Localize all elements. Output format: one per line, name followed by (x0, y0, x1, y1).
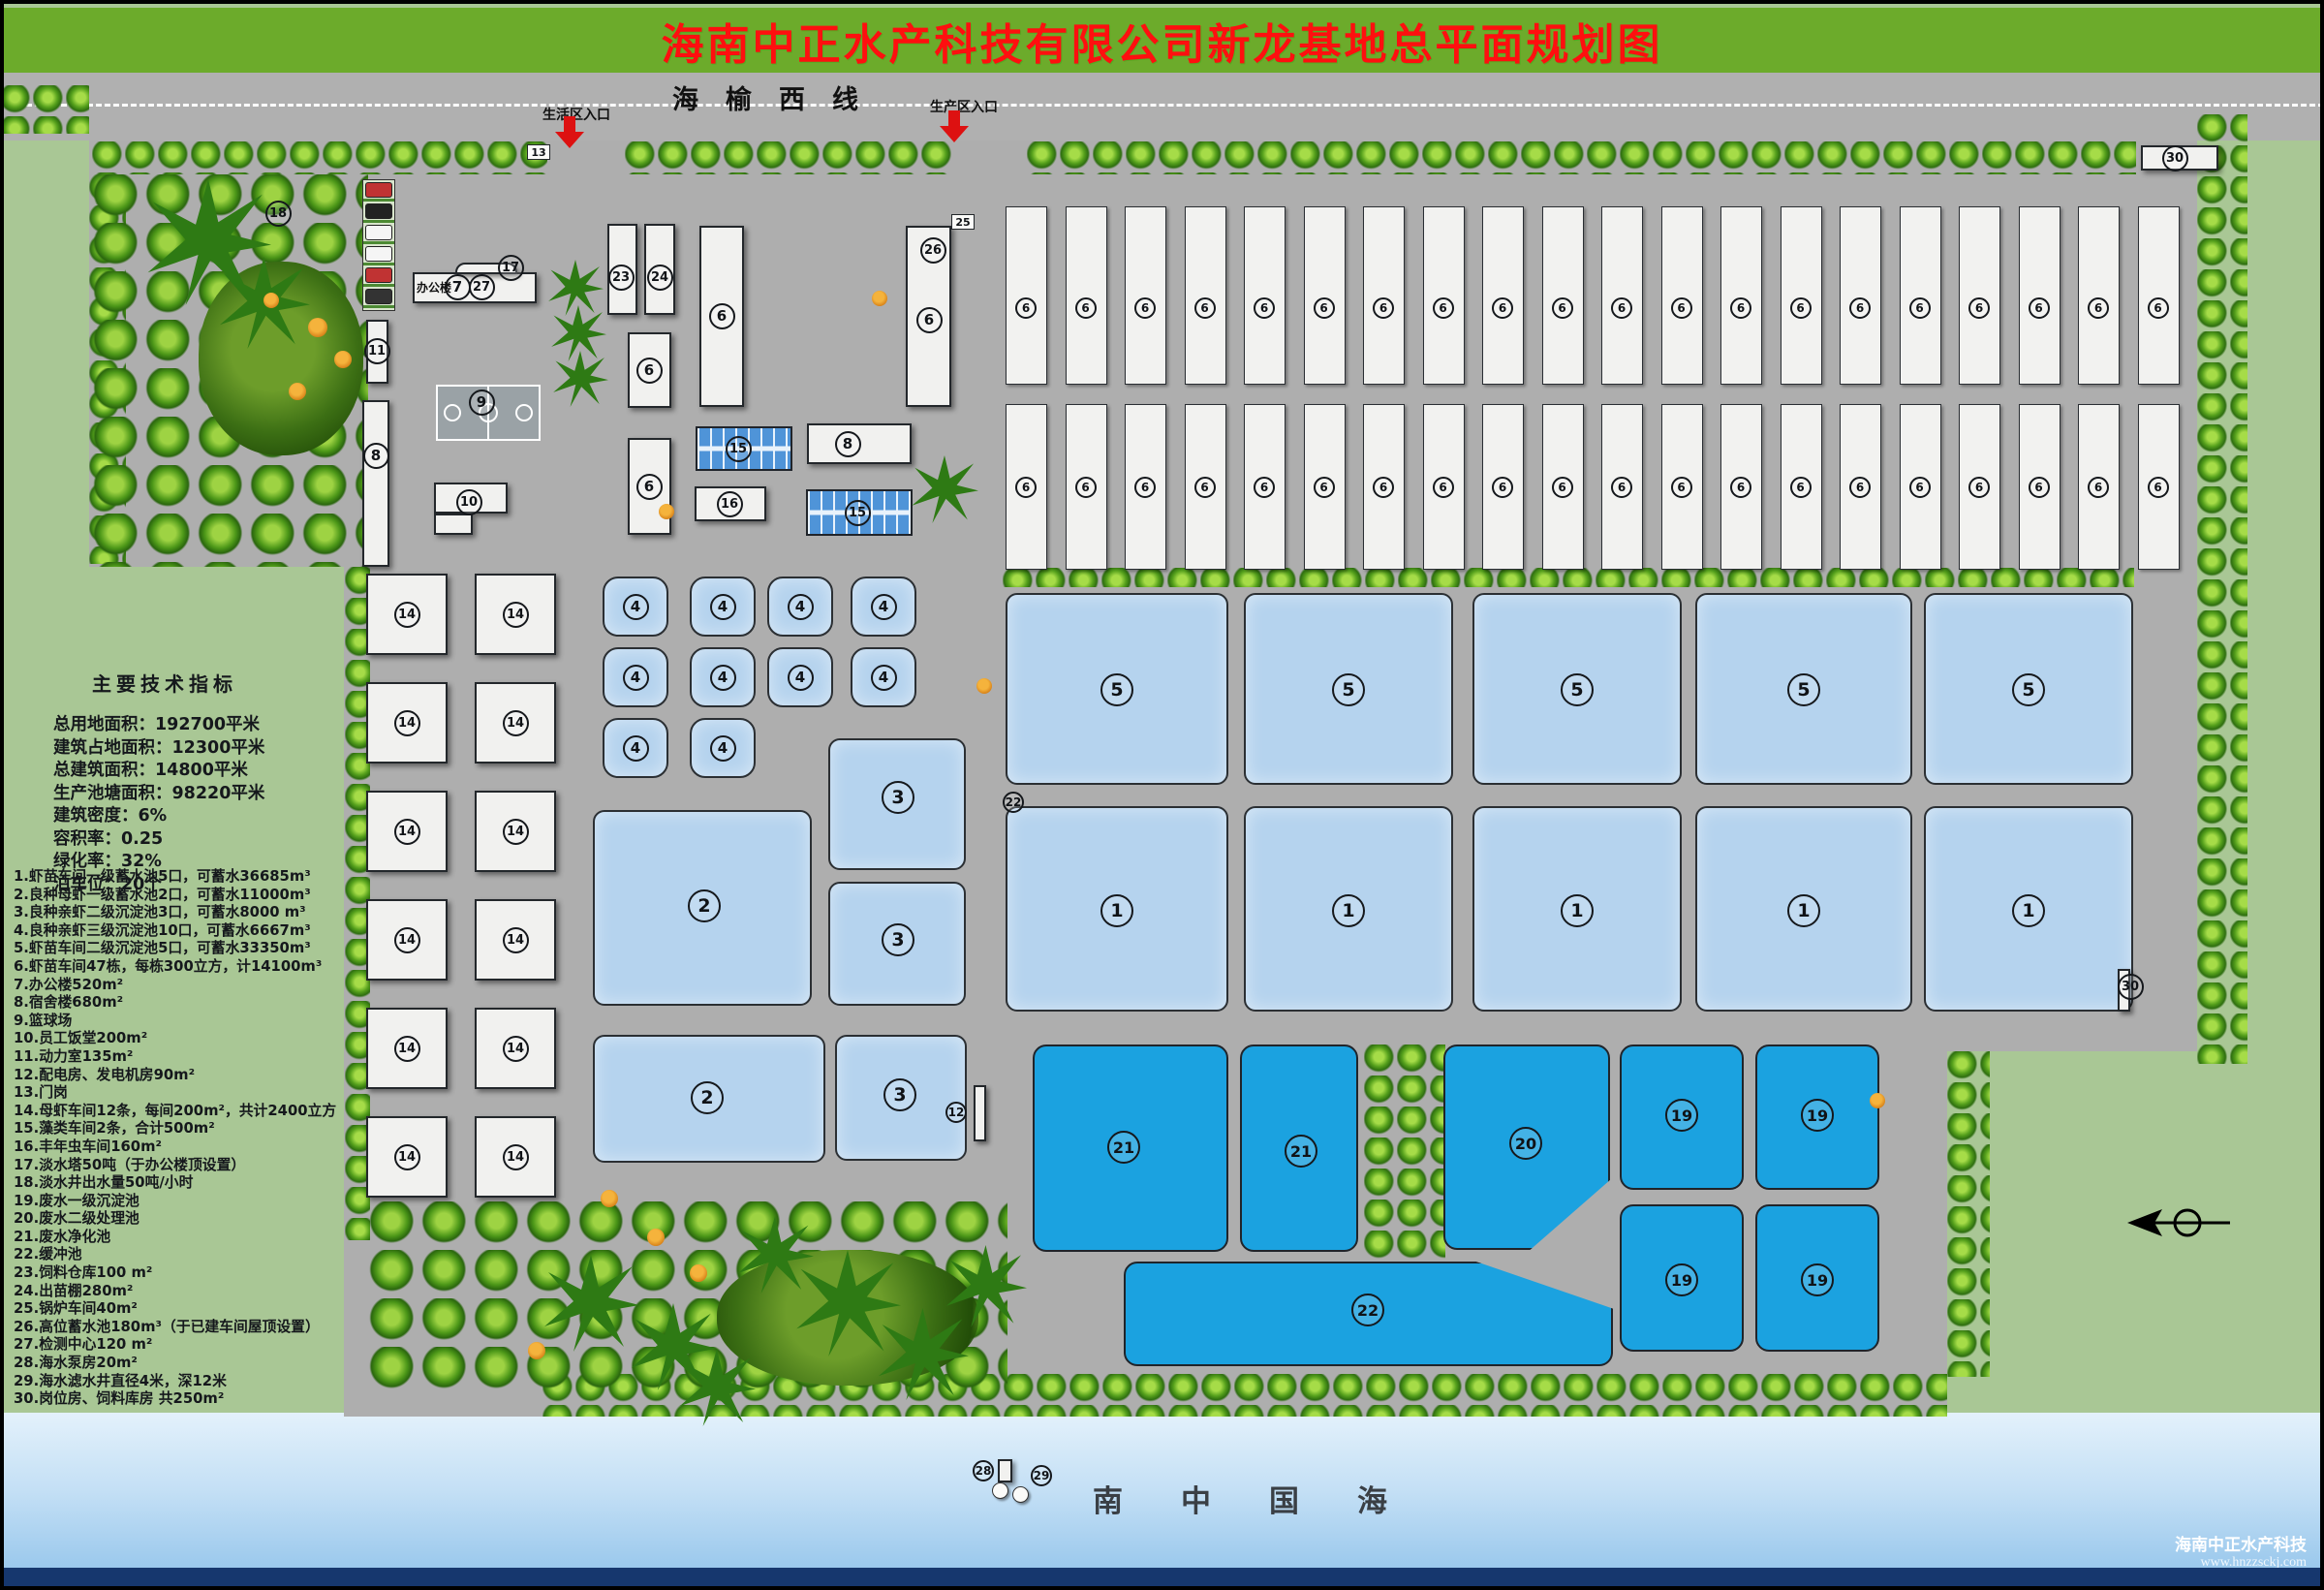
marker-6: 6 (1671, 477, 1692, 498)
legend-item: 16.丰年虫车间160m² (14, 1138, 401, 1157)
indicator-line: 总用地面积：192700平米 (53, 714, 373, 737)
marker-15: 15 (726, 436, 752, 462)
legend-item: 5.虾苗车间二级沉淀池5口，可蓄水33350m³ (14, 940, 401, 958)
shrimp-workshop (2078, 206, 2120, 385)
production-entrance-arrow-icon (940, 110, 969, 143)
marker-30: 30 (2162, 145, 2188, 171)
living-entrance-arrow-icon (555, 116, 584, 149)
marker-10: 10 (456, 489, 482, 515)
road-surface (347, 655, 581, 682)
marker-6: 6 (709, 303, 735, 329)
filter-well-icon (1012, 1486, 1029, 1503)
marker-6: 6 (1015, 477, 1037, 498)
marker-6: 6 (2029, 297, 2050, 319)
orange-shrub-icon (308, 318, 327, 337)
shrimp-workshop (1482, 206, 1524, 385)
marker-6: 6 (1075, 477, 1097, 498)
legend-item: 2.良种母虾一级蓄水池2口，可蓄水11000m³ (14, 887, 401, 905)
tree-hedge (625, 141, 954, 174)
legend-item: 20.废水二级处理池 (14, 1210, 401, 1229)
marker-12: 12 (945, 1102, 967, 1123)
marker-4: 4 (788, 594, 814, 620)
marker-4: 4 (710, 665, 736, 691)
marker-6: 6 (1433, 297, 1454, 319)
marker-6: 6 (1134, 297, 1156, 319)
shrimp-workshop (1840, 206, 1881, 385)
legend-item: 23.饲料仓库100 m² (14, 1264, 401, 1283)
marker-13: 13 (527, 144, 550, 160)
marker-14: 14 (394, 602, 420, 628)
marker-30: 30 (2118, 974, 2144, 1000)
compass-icon (2122, 1190, 2238, 1260)
indicator-line: 生产池塘面积：98220平米 (53, 783, 373, 806)
orange-shrub-icon (647, 1229, 665, 1246)
marker-14: 14 (503, 1144, 529, 1170)
legend-item: 8.宿舍楼680m² (14, 994, 401, 1013)
orange-shrub-icon (601, 1190, 618, 1207)
sea-pump-house (998, 1459, 1012, 1482)
parked-car-icon (365, 267, 392, 283)
marker-6: 6 (916, 307, 943, 333)
shrimp-workshop (1601, 206, 1643, 385)
marker-6: 6 (1194, 297, 1216, 319)
marker-6: 6 (1909, 477, 1931, 498)
tree-hedge (1027, 141, 2136, 174)
marker-5: 5 (2012, 673, 2045, 706)
marker-6: 6 (1611, 297, 1632, 319)
marker-20: 20 (1509, 1127, 1542, 1160)
marker-6: 6 (1849, 297, 1871, 319)
parked-car-icon (365, 225, 392, 240)
marker-4: 4 (710, 735, 736, 762)
marker-6: 6 (1968, 297, 1990, 319)
marker-6: 6 (1730, 477, 1751, 498)
marker-27: 27 (469, 274, 495, 300)
office-building-label: 办公楼 (417, 279, 451, 296)
marker-14: 14 (503, 927, 529, 953)
orange-shrub-icon (976, 678, 992, 694)
shrimp-workshop (2019, 206, 2061, 385)
marker-5: 5 (1100, 673, 1133, 706)
marker-4: 4 (623, 665, 649, 691)
orange-shrub-icon (1870, 1093, 1885, 1108)
marker-2: 2 (688, 889, 721, 922)
marker-6: 6 (1433, 477, 1454, 498)
tree-hedge (0, 85, 89, 134)
marker-24: 24 (647, 265, 673, 291)
bottom-bar (0, 1568, 2324, 1590)
marker-23: 23 (608, 265, 635, 291)
orange-shrub-icon (289, 383, 306, 400)
marker-25: 25 (951, 214, 975, 230)
shrimp-workshop (1006, 206, 1047, 385)
canteen (434, 514, 473, 535)
marker-1: 1 (2012, 894, 2045, 927)
legend-item: 24.出苗棚280m² (14, 1283, 401, 1301)
indicator-line: 建筑密度：6% (53, 805, 373, 828)
marker-4: 4 (623, 594, 649, 620)
marker-22: 22 (1003, 792, 1024, 813)
marker-6: 6 (636, 358, 663, 384)
legend-item: 1.虾苗车间一级蓄水池5口，可蓄水36685m³ (14, 868, 401, 887)
legend-item: 9.篮球场 (14, 1013, 401, 1031)
marker-6: 6 (1254, 477, 1275, 498)
marker-6: 6 (1492, 297, 1513, 319)
marker-1: 1 (1561, 894, 1594, 927)
page-title: 海南中正水产科技有限公司新龙基地总平面规划图 (662, 10, 1663, 72)
marker-6: 6 (1492, 477, 1513, 498)
marker-14: 14 (503, 602, 529, 628)
marker-19: 19 (1801, 1263, 1834, 1296)
marker-6: 6 (1730, 297, 1751, 319)
legend-item: 27.检测中心120 m² (14, 1336, 401, 1355)
shrimp-workshop (2138, 206, 2180, 385)
marker-6: 6 (1373, 297, 1394, 319)
legend-item: 18.淡水井出水量50吨/小时 (14, 1174, 401, 1193)
marker-19: 19 (1665, 1263, 1698, 1296)
marker-3: 3 (883, 1078, 916, 1111)
marker-19: 19 (1801, 1099, 1834, 1132)
indicator-line: 总建筑面积：14800平米 (53, 760, 373, 783)
parked-car-icon (365, 246, 392, 262)
tree-hedge (1947, 1051, 1990, 1377)
tree-hedge (1003, 568, 2134, 587)
marker-4: 4 (871, 594, 897, 620)
legend-item: 29.海水滤水井直径4米，深12米 (14, 1373, 401, 1391)
shrimp-workshop (1900, 206, 1941, 385)
marker-18: 18 (265, 201, 292, 227)
marker-6: 6 (1254, 297, 1275, 319)
marker-6: 6 (1015, 297, 1037, 319)
orange-shrub-icon (263, 293, 279, 308)
legend-item: 7.办公楼520m² (14, 977, 401, 995)
legend-item: 17.淡水塔50吨（于办公楼顶设置） (14, 1157, 401, 1175)
marker-11: 11 (364, 338, 390, 364)
legend-item: 28.海水泵房20m² (14, 1355, 401, 1373)
shrimp-workshop (1125, 206, 1166, 385)
marker-2: 2 (691, 1081, 724, 1114)
orange-shrub-icon (690, 1264, 707, 1282)
marker-3: 3 (882, 923, 914, 956)
indicator-line: 建筑占地面积：12300平米 (53, 737, 373, 761)
orange-shrub-icon (528, 1342, 545, 1359)
marker-1: 1 (1787, 894, 1820, 927)
legend-item: 25.锅炉车间40m² (14, 1300, 401, 1319)
orange-shrub-icon (334, 351, 352, 368)
marker-14: 14 (394, 819, 420, 845)
legend-item: 30.岗位房、饲料库房 共250m² (14, 1390, 401, 1409)
marker-6: 6 (1075, 297, 1097, 319)
marker-9: 9 (469, 390, 495, 416)
marker-4: 4 (623, 735, 649, 762)
marker-14: 14 (394, 710, 420, 736)
orange-shrub-icon (872, 291, 887, 306)
shrimp-workshop (1781, 206, 1822, 385)
marker-28: 28 (973, 1460, 994, 1481)
marker-6: 6 (1134, 477, 1156, 498)
marker-21: 21 (1285, 1135, 1317, 1168)
marker-6: 6 (1373, 477, 1394, 498)
legend-item: 15.藻类车间2条，合计500m² (14, 1120, 401, 1138)
marker-15: 15 (845, 500, 871, 526)
marker-6: 6 (2088, 477, 2109, 498)
tree-hedge (92, 141, 547, 174)
marker-6: 6 (2088, 297, 2109, 319)
shrimp-workshop (1066, 206, 1107, 385)
marker-6: 6 (1611, 477, 1632, 498)
marker-4: 4 (788, 665, 814, 691)
tree-hedge (2197, 114, 2247, 1064)
shrimp-workshop (1185, 206, 1226, 385)
parked-car-icon (365, 182, 392, 198)
parked-car-icon (365, 289, 392, 304)
shrimp-workshop (1304, 206, 1346, 385)
marker-14: 14 (503, 819, 529, 845)
marker-6: 6 (1552, 477, 1573, 498)
legend-item: 4.良种亲虾三级沉淀池10口，可蓄水6667m³ (14, 922, 401, 941)
tech-indicators-panel: 主要技术指标 总用地面积：192700平米建筑占地面积：12300平米总建筑面积… (53, 669, 373, 896)
legend-list: 1.虾苗车间一级蓄水池5口，可蓄水36685m³2.良种母虾一级蓄水池2口，可蓄… (14, 868, 401, 1409)
orange-shrub-icon (659, 504, 674, 519)
legend-item: 12.配电房、发电机房90m² (14, 1067, 401, 1085)
dormitory (362, 400, 389, 567)
shrimp-workshop (1959, 206, 2000, 385)
marker-26: 26 (920, 237, 946, 264)
legend-item: 6.虾苗车间47栋，每栋300立方，计14100m³ (14, 958, 401, 977)
marker-4: 4 (710, 594, 736, 620)
title-banner: 海南中正水产科技有限公司新龙基地总平面规划图 (0, 8, 2324, 73)
marker-6: 6 (2029, 477, 2050, 498)
marker-19: 19 (1665, 1099, 1698, 1132)
marker-6: 6 (636, 474, 663, 500)
legend-item: 13.门岗 (14, 1084, 401, 1103)
marker-6: 6 (1849, 477, 1871, 498)
road-surface (347, 764, 581, 791)
legend-panel: 1.虾苗车间一级蓄水池5口，可蓄水36685m³2.良种母虾一级蓄水池2口，可蓄… (14, 868, 401, 1409)
parked-car-icon (365, 203, 392, 219)
marker-4: 4 (871, 665, 897, 691)
legend-item: 11.动力室135m² (14, 1048, 401, 1067)
marker-14: 14 (503, 710, 529, 736)
marker-3: 3 (882, 781, 914, 814)
marker-6: 6 (1671, 297, 1692, 319)
marker-6: 6 (1968, 477, 1990, 498)
marker-29: 29 (1031, 1465, 1052, 1486)
marker-1: 1 (1100, 894, 1133, 927)
marker-6: 6 (1552, 297, 1573, 319)
marker-6: 6 (1314, 297, 1335, 319)
marker-6: 6 (1790, 297, 1812, 319)
marker-6: 6 (1194, 477, 1216, 498)
marker-6: 6 (1909, 297, 1931, 319)
marker-8: 8 (363, 443, 389, 469)
marker-17: 17 (498, 255, 524, 281)
legend-item: 3.良种亲虾二级沉淀池3口，可蓄水8000 m³ (14, 904, 401, 922)
shrimp-workshop (1244, 206, 1286, 385)
legend-item: 26.高位蓄水池180m³（于已建车间屋顶设置） (14, 1319, 401, 1337)
shrimp-workshop (1661, 206, 1703, 385)
marker-22: 22 (1351, 1294, 1384, 1326)
marker-14: 14 (503, 1036, 529, 1062)
marker-21: 21 (1107, 1131, 1140, 1164)
marker-6: 6 (1790, 477, 1812, 498)
tech-indicators-title: 主要技术指标 (92, 669, 373, 697)
shrimp-workshop (1363, 206, 1405, 385)
filter-well-icon (992, 1482, 1008, 1499)
legend-item: 19.废水一级沉淀池 (14, 1193, 401, 1211)
shrimp-workshop (1542, 206, 1584, 385)
shrimp-workshop (1720, 206, 1762, 385)
indicator-line: 容积率：0.25 (53, 828, 373, 852)
legend-item: 10.员工饭堂200m² (14, 1030, 401, 1048)
legend-item: 21.废水净化池 (14, 1229, 401, 1247)
shrimp-workshop (1423, 206, 1465, 385)
marker-6: 6 (2148, 477, 2169, 498)
marker-6: 6 (1314, 477, 1335, 498)
marker-5: 5 (1787, 673, 1820, 706)
generator-room (974, 1085, 986, 1141)
legend-item: 14.母虾车间12条，每间200m²，共计2400立方 (14, 1103, 401, 1121)
marker-6: 6 (2148, 297, 2169, 319)
legend-item: 22.缓冲池 (14, 1246, 401, 1264)
marker-8: 8 (835, 431, 861, 457)
tree-hedge (1364, 1044, 1445, 1262)
marker-16: 16 (717, 491, 743, 517)
marker-5: 5 (1332, 673, 1365, 706)
marker-5: 5 (1561, 673, 1594, 706)
marker-1: 1 (1332, 894, 1365, 927)
